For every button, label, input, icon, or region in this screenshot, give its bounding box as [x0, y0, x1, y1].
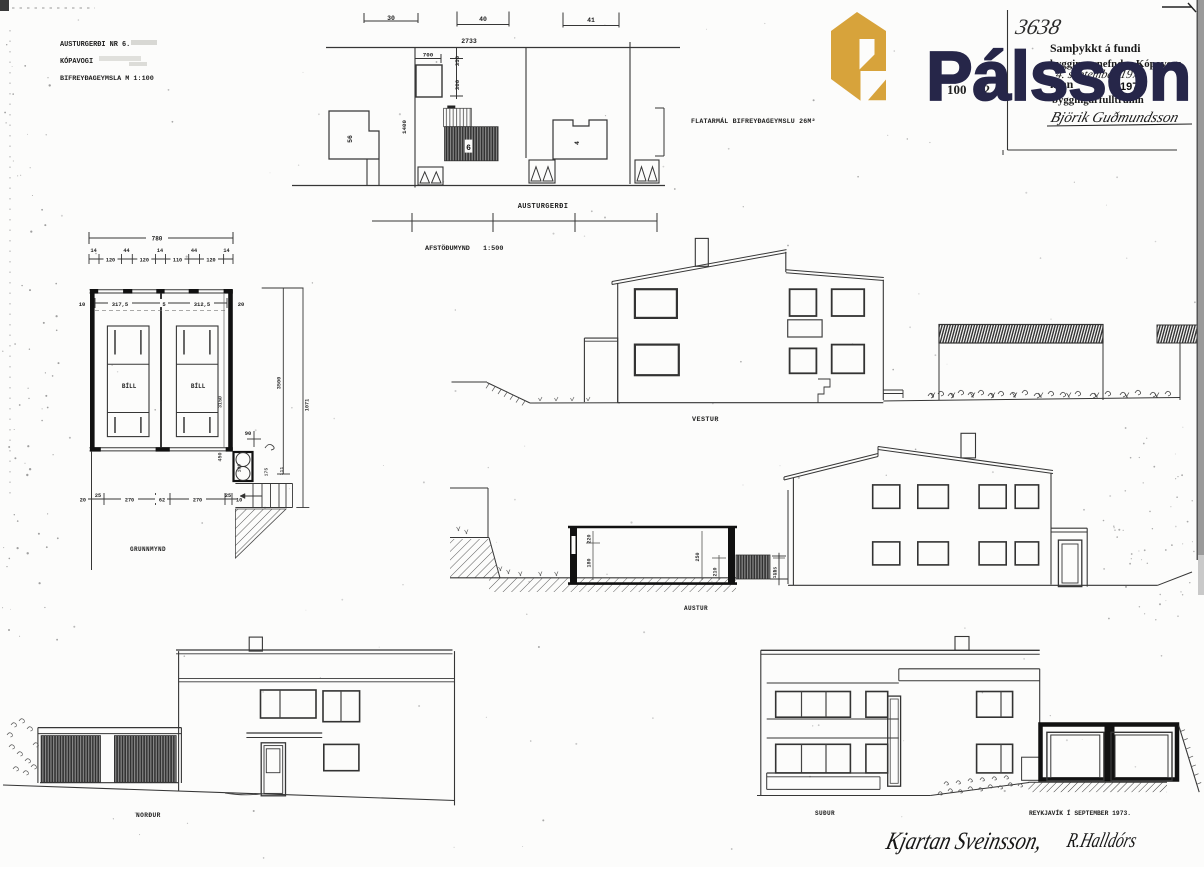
svg-text:BÍLL: BÍLL: [191, 383, 206, 390]
svg-text:25: 25: [225, 493, 231, 499]
svg-text:14: 14: [223, 248, 229, 254]
svg-text:115: 115: [772, 570, 778, 579]
svg-text:317,5: 317,5: [112, 301, 129, 308]
svg-text:10: 10: [79, 301, 86, 308]
svg-text:450: 450: [218, 452, 224, 461]
svg-text:312,5: 312,5: [194, 301, 211, 308]
svg-text:120: 120: [106, 258, 115, 264]
svg-text:25: 25: [95, 493, 101, 499]
svg-text:270: 270: [193, 498, 202, 504]
svg-text:700: 700: [423, 52, 434, 59]
svg-text:250: 250: [695, 552, 701, 561]
svg-text:AUSTURGERÐI: AUSTURGERÐI: [518, 203, 569, 211]
svg-text:BIFREYÐAGEYMSLA M 1:100: BIFREYÐAGEYMSLA M 1:100: [60, 75, 154, 83]
svg-text:1:500: 1:500: [483, 245, 503, 253]
svg-text:4: 4: [574, 141, 581, 145]
svg-text:6: 6: [466, 144, 471, 153]
svg-text:Kjartan Sveinsson,: Kjartan Sveinsson,: [883, 828, 1046, 856]
svg-text:56: 56: [347, 135, 354, 143]
svg-text:AFSTÖÐUMYND: AFSTÖÐUMYND: [425, 244, 470, 253]
svg-text:VESTUR: VESTUR: [692, 416, 719, 424]
svg-text:270: 270: [125, 498, 134, 504]
svg-text:10: 10: [236, 498, 242, 504]
svg-text:14: 14: [157, 248, 163, 254]
svg-text:1071: 1071: [305, 399, 311, 411]
svg-text:41: 41: [587, 17, 595, 24]
svg-text:BÍLL: BÍLL: [122, 383, 137, 390]
svg-text:NORÐUR: NORÐUR: [136, 812, 161, 819]
svg-text:62: 62: [159, 498, 165, 504]
svg-text:180: 180: [587, 558, 593, 567]
svg-text:110: 110: [173, 258, 182, 264]
svg-text:R.Halldórs: R.Halldórs: [1064, 829, 1139, 852]
svg-text:AUSTUR: AUSTUR: [684, 605, 708, 612]
svg-text:220: 220: [587, 534, 593, 543]
svg-text:2733: 2733: [461, 38, 477, 45]
svg-text:40: 40: [479, 16, 487, 23]
svg-text:3500: 3500: [277, 377, 283, 389]
svg-text:350: 350: [454, 55, 461, 66]
svg-text:GRUNNMYND: GRUNNMYND: [130, 546, 166, 553]
svg-text:90: 90: [245, 430, 252, 437]
svg-text:Pálsson: Pálsson: [926, 37, 1191, 115]
svg-text:44: 44: [123, 248, 129, 254]
svg-text:20: 20: [80, 498, 86, 504]
svg-text:44: 44: [191, 248, 197, 254]
svg-text:20: 20: [238, 301, 245, 308]
svg-text:300: 300: [454, 79, 461, 90]
svg-text:AUSTURGERÐI NR 6.: AUSTURGERÐI NR 6.: [60, 41, 130, 49]
svg-text:SUÐUR: SUÐUR: [815, 810, 835, 817]
svg-text:FLATARMÁL BIFREYÐAGEYMSLU 26M²: FLATARMÁL BIFREYÐAGEYMSLU 26M²: [691, 117, 816, 125]
svg-text:100: 100: [237, 464, 243, 473]
svg-text:KÓPAVOGI: KÓPAVOGI: [60, 56, 93, 66]
svg-text:120: 120: [140, 258, 149, 264]
svg-text:14: 14: [90, 248, 96, 254]
svg-text:1400: 1400: [401, 120, 408, 134]
svg-text:175: 175: [264, 468, 270, 477]
svg-text:REYKJAVÍK Í SEPTEMBER 1973.: REYKJAVÍK Í SEPTEMBER 1973.: [1029, 809, 1131, 817]
svg-text:30: 30: [387, 15, 395, 22]
svg-text:780: 780: [152, 236, 163, 243]
svg-text:210: 210: [713, 567, 719, 576]
svg-text:3150: 3150: [218, 396, 224, 408]
svg-text:3638: 3638: [1012, 14, 1063, 39]
svg-text:120: 120: [206, 258, 215, 264]
